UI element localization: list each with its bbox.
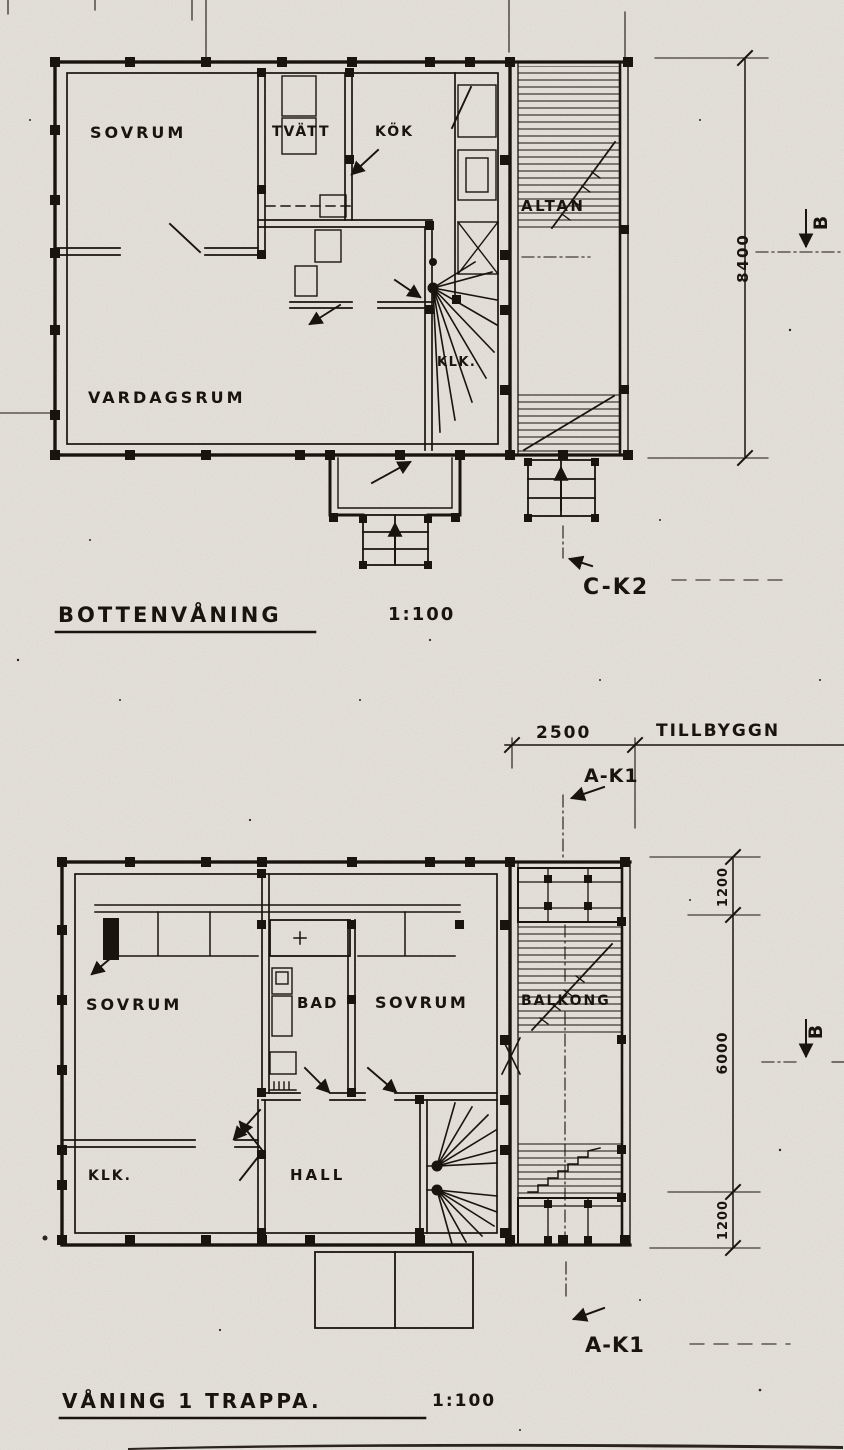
room-label-tvatt: TVÄTT (272, 123, 331, 140)
room-label-sovrum-right: SOVRUM (375, 993, 468, 1012)
room-label-sovrum-left: SOVRUM (86, 995, 182, 1014)
ak1-top-label: A-K1 (584, 765, 639, 787)
room-label-kok: KÖK (375, 122, 414, 140)
dim-2500-label: 2500 (536, 723, 591, 743)
room-label-klk-ground: KLK. (437, 355, 476, 370)
room-label-altan: ALTAN (521, 197, 585, 215)
room-label-bad: BAD (297, 994, 339, 1012)
room-label-sovrum-ground: SOVRUM (90, 123, 186, 142)
dim-8400-label: 8400 (734, 233, 752, 283)
ground-floor-scale: 1:100 (388, 604, 455, 625)
ck2-label: C-K2 (583, 575, 649, 600)
room-label-balkong: BALKONG (521, 993, 611, 1009)
room-label-klk-upper: KLK. (88, 1168, 132, 1184)
section-b-letter-upper: B (805, 1025, 827, 1039)
dim-1200-top: 1200 (716, 867, 731, 907)
dim-1200-bottom: 1200 (716, 1200, 731, 1240)
ground-floor-title: BOTTENVÅNING (58, 602, 282, 627)
upper-floor-scale: 1:100 (432, 1391, 496, 1411)
tillbyggnad-label: TILLBYGGN (656, 721, 780, 741)
upper-floor-title: VÅNING 1 TRAPPA. (62, 1389, 322, 1413)
balcony-hatch-top (518, 925, 622, 1037)
floor-plan-drawing: 8400 B C-K2 SOVRUM TVÄTT KÖK ALTAN KLK. … (0, 0, 844, 1450)
room-label-vardagsrum: VARDAGSRUM (88, 388, 246, 407)
section-b-letter: B (810, 216, 832, 230)
ak1-bottom-label: A-K1 (585, 1333, 645, 1357)
balcony-hatch-bottom (518, 1140, 622, 1196)
room-label-hall: HALL (290, 1166, 345, 1184)
altan-deck-hatch-bottom (518, 390, 620, 452)
dim-6000-middle: 6000 (715, 1032, 731, 1075)
